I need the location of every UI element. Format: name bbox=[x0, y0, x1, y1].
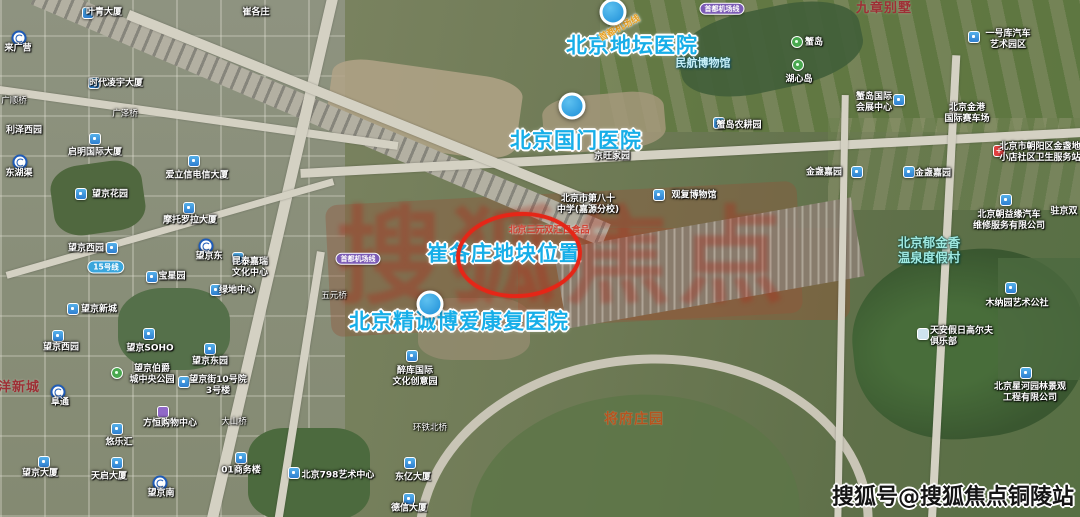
map-label: 时代凌宇大厦 bbox=[89, 79, 143, 90]
hospital-label-guomen: 北京国门医院 bbox=[510, 128, 642, 153]
map-label: 叶青大厦 bbox=[86, 8, 122, 19]
building-icon bbox=[89, 133, 101, 145]
map-label: 望京新城 bbox=[81, 305, 117, 316]
building-icon bbox=[188, 155, 200, 167]
green-icon bbox=[111, 367, 123, 379]
map-label: 首都机场线 bbox=[700, 3, 745, 15]
map-label: 天安假日高尔夫 俱乐部 bbox=[930, 326, 993, 348]
building-icon bbox=[653, 189, 665, 201]
map-label: 大山桥 bbox=[221, 417, 247, 427]
map-label: 北京星河园林景观 工程有限公司 bbox=[994, 382, 1066, 404]
attribution: 搜狐号@搜狐焦点铜陵站 bbox=[832, 479, 1074, 511]
map-label: 望京大厦 bbox=[22, 469, 58, 480]
building-icon bbox=[1005, 282, 1017, 294]
building-icon bbox=[67, 303, 79, 315]
map-label: 北京朝益缘汽车 维修服务有限公司 bbox=[973, 210, 1045, 232]
map-label: 木纳园艺术公社 bbox=[985, 299, 1048, 310]
building-icon bbox=[893, 94, 905, 106]
map-label: 将府庄园 bbox=[604, 412, 664, 429]
map-label: 九章别墅 bbox=[856, 1, 912, 17]
map-label: 阜通 bbox=[51, 398, 69, 409]
map-label: 望京南 bbox=[147, 489, 174, 500]
map-label: 望京西园 bbox=[43, 343, 79, 354]
map-label: 东亿大厦 bbox=[395, 473, 431, 484]
building-icon bbox=[183, 202, 195, 214]
map-label: 驻京双 bbox=[1050, 207, 1077, 218]
map-label: 北京郁金香 温泉度假村 bbox=[898, 235, 961, 265]
map-label: 望京西园 bbox=[68, 244, 104, 255]
map-label: 望京SOHO bbox=[126, 344, 173, 355]
map-label: 民航博物馆 bbox=[676, 56, 731, 69]
building-icon bbox=[204, 343, 216, 355]
building-icon bbox=[968, 31, 980, 43]
building-icon bbox=[406, 350, 418, 362]
map-label: 五元桥 bbox=[321, 291, 347, 301]
map-label: 观复博物馆 bbox=[671, 191, 716, 202]
map-label: 京旺家园 bbox=[594, 152, 630, 163]
map-label: 爱立信电信大厦 bbox=[165, 171, 228, 182]
map-label: 望京东 bbox=[195, 252, 222, 263]
building-icon bbox=[52, 330, 64, 342]
map-label: 崔各庄 bbox=[242, 8, 269, 19]
building-icon bbox=[111, 457, 123, 469]
building-icon bbox=[146, 271, 158, 283]
building-icon bbox=[288, 467, 300, 479]
hospital-label-jingchengboai: 北京精诚博爱康复医院 bbox=[349, 309, 569, 334]
map-label: 金盏嘉园 bbox=[806, 168, 842, 179]
map-label: 醉库国际 文化创意园 bbox=[392, 366, 437, 388]
satellite-map: 搜狐焦点 北京地坛医院北京国门医院北京精诚博爱康复医院崔各庄地块位置叶青大厦来广… bbox=[0, 0, 1080, 517]
building-icon bbox=[1020, 367, 1032, 379]
map-label: 望京街10号院 3号楼 bbox=[189, 375, 247, 397]
building-icon bbox=[38, 456, 50, 468]
metro-icon bbox=[13, 155, 28, 170]
building-icon bbox=[851, 166, 863, 178]
map-label: 01商务楼 bbox=[221, 466, 261, 477]
map-label: 远洋新城 bbox=[0, 380, 40, 396]
hospital-marker-dot bbox=[417, 291, 444, 318]
map-label: 东湖渠 bbox=[5, 169, 32, 180]
map-label: 悠乐汇 bbox=[105, 438, 132, 449]
map-label: 北京798艺术中心 bbox=[302, 471, 375, 482]
map-label: 望京东园 bbox=[192, 357, 228, 368]
map-label: 首都机场线 bbox=[336, 253, 381, 265]
map-label: 湖心岛 bbox=[785, 75, 812, 86]
building-icon bbox=[143, 328, 155, 340]
map-label: 昆泰嘉瑞 文化中心 bbox=[232, 257, 268, 279]
map-label: 天启大厦 bbox=[91, 472, 127, 483]
hospital-label-ditan: 北京地坛医院 bbox=[566, 33, 698, 58]
map-label: 一号库汽车 艺术园区 bbox=[985, 29, 1030, 51]
building-icon bbox=[75, 188, 87, 200]
map-label: 蟹岛 bbox=[805, 38, 823, 49]
hospital-marker-dot bbox=[559, 93, 586, 120]
map-label: 绿地中心 bbox=[219, 286, 255, 297]
green-icon bbox=[791, 36, 803, 48]
building-icon bbox=[178, 376, 190, 388]
map-label: 摩托罗拉大厦 bbox=[163, 216, 217, 227]
map-label: 环铁北桥 bbox=[413, 423, 447, 433]
map-label: 北京市朝阳区金盏地 小店社区卫生服务站 bbox=[999, 142, 1080, 164]
building-icon bbox=[106, 242, 118, 254]
map-label: 望京花园 bbox=[92, 190, 128, 201]
map-label: 广顺桥 bbox=[1, 96, 27, 106]
building-icon bbox=[404, 457, 416, 469]
map-label: 15号线 bbox=[87, 261, 124, 274]
map-label: 广泽桥 bbox=[112, 109, 138, 119]
map-label: 启明国际大厦 bbox=[68, 148, 122, 159]
building-icon bbox=[903, 166, 915, 178]
map-label: 宝星园 bbox=[158, 272, 185, 283]
purple-icon bbox=[157, 406, 169, 418]
light-icon bbox=[917, 328, 929, 340]
map-label: 蟹岛农耕园 bbox=[716, 121, 761, 132]
map-label: 北京金港 国际赛车场 bbox=[944, 103, 989, 125]
map-label: 利泽西园 bbox=[6, 126, 42, 137]
map-label: 金盏嘉园 bbox=[915, 169, 951, 180]
map-label: 蟹岛国际 会展中心 bbox=[856, 92, 892, 114]
map-label: 望京伯爵 城中央公园 bbox=[129, 364, 174, 386]
building-icon bbox=[111, 423, 123, 435]
map-label: 德信大厦 bbox=[391, 504, 427, 515]
map-label: 来广营 bbox=[4, 44, 31, 55]
building-icon bbox=[235, 452, 247, 464]
map-label: 方恒购物中心 bbox=[143, 419, 197, 430]
map-label: 北京市第八十 中学(嘉源分校) bbox=[557, 194, 619, 216]
building-icon bbox=[1000, 194, 1012, 206]
green-icon bbox=[792, 59, 804, 71]
